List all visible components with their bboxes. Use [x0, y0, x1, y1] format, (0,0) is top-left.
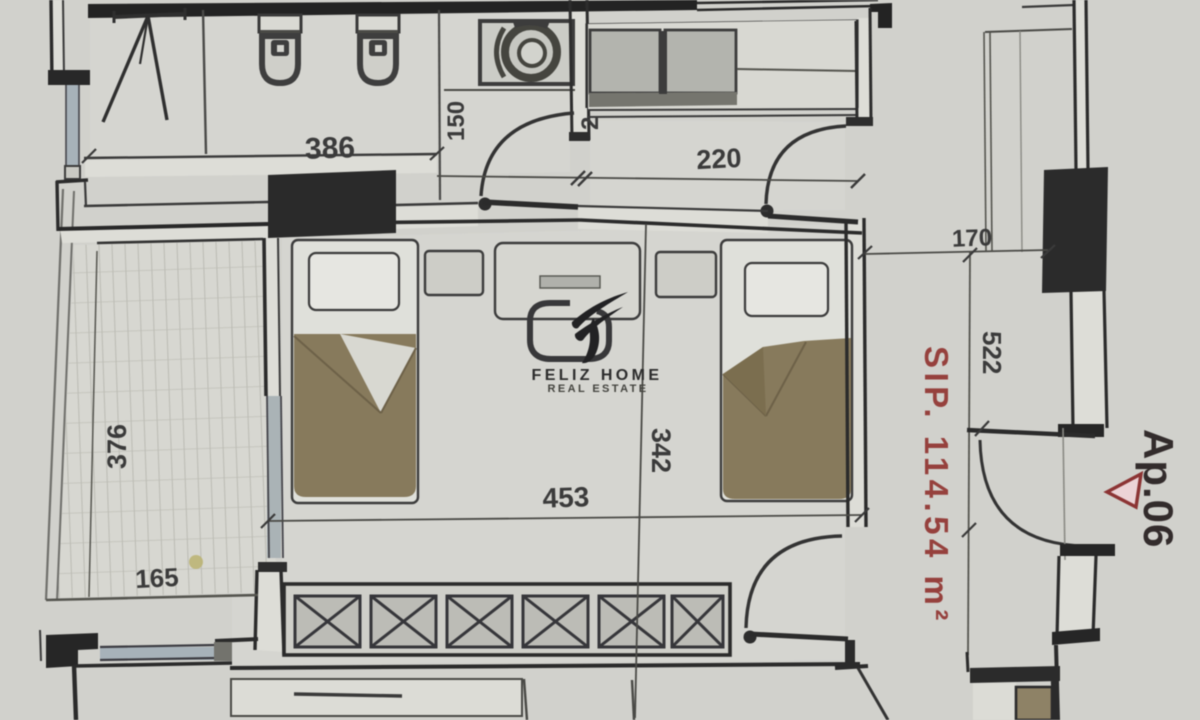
- svg-text:220: 220: [696, 143, 743, 175]
- svg-text:165: 165: [134, 562, 179, 594]
- svg-text:FELIZ HOME: FELIZ HOME: [532, 367, 663, 384]
- svg-text:386: 386: [304, 131, 355, 166]
- svg-text:Ap.06: Ap.06: [1135, 429, 1182, 548]
- svg-text:REAL ESTATE: REAL ESTATE: [548, 383, 649, 395]
- svg-text:342: 342: [646, 428, 676, 473]
- svg-text:150: 150: [443, 101, 470, 141]
- svg-text:522: 522: [977, 331, 1007, 374]
- svg-text:170: 170: [952, 224, 993, 252]
- svg-text:453: 453: [542, 481, 590, 514]
- svg-text:2: 2: [577, 117, 604, 130]
- svg-text:SIP. 114.54 m²: SIP. 114.54 m²: [918, 346, 955, 625]
- svg-text:376: 376: [102, 424, 132, 469]
